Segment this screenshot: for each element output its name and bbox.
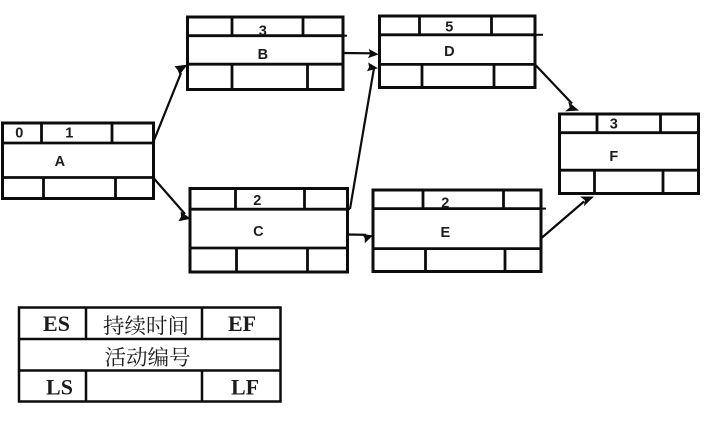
svg-text:0: 0 [15, 126, 23, 142]
svg-text:D: D [444, 44, 455, 60]
svg-text:2: 2 [253, 193, 261, 209]
svg-text:5: 5 [445, 20, 453, 36]
svg-text:3: 3 [610, 117, 618, 133]
svg-text:E: E [440, 225, 450, 241]
svg-text:3: 3 [259, 24, 267, 40]
svg-text:2: 2 [441, 195, 449, 211]
svg-text:ES: ES [43, 311, 70, 336]
svg-text:LF: LF [231, 375, 259, 400]
svg-text:A: A [55, 154, 66, 170]
svg-text:LS: LS [46, 375, 73, 400]
svg-text:EF: EF [228, 311, 256, 336]
svg-text:C: C [253, 224, 264, 240]
svg-text:1: 1 [65, 126, 73, 142]
svg-text:F: F [609, 149, 618, 165]
svg-text:B: B [258, 47, 269, 63]
